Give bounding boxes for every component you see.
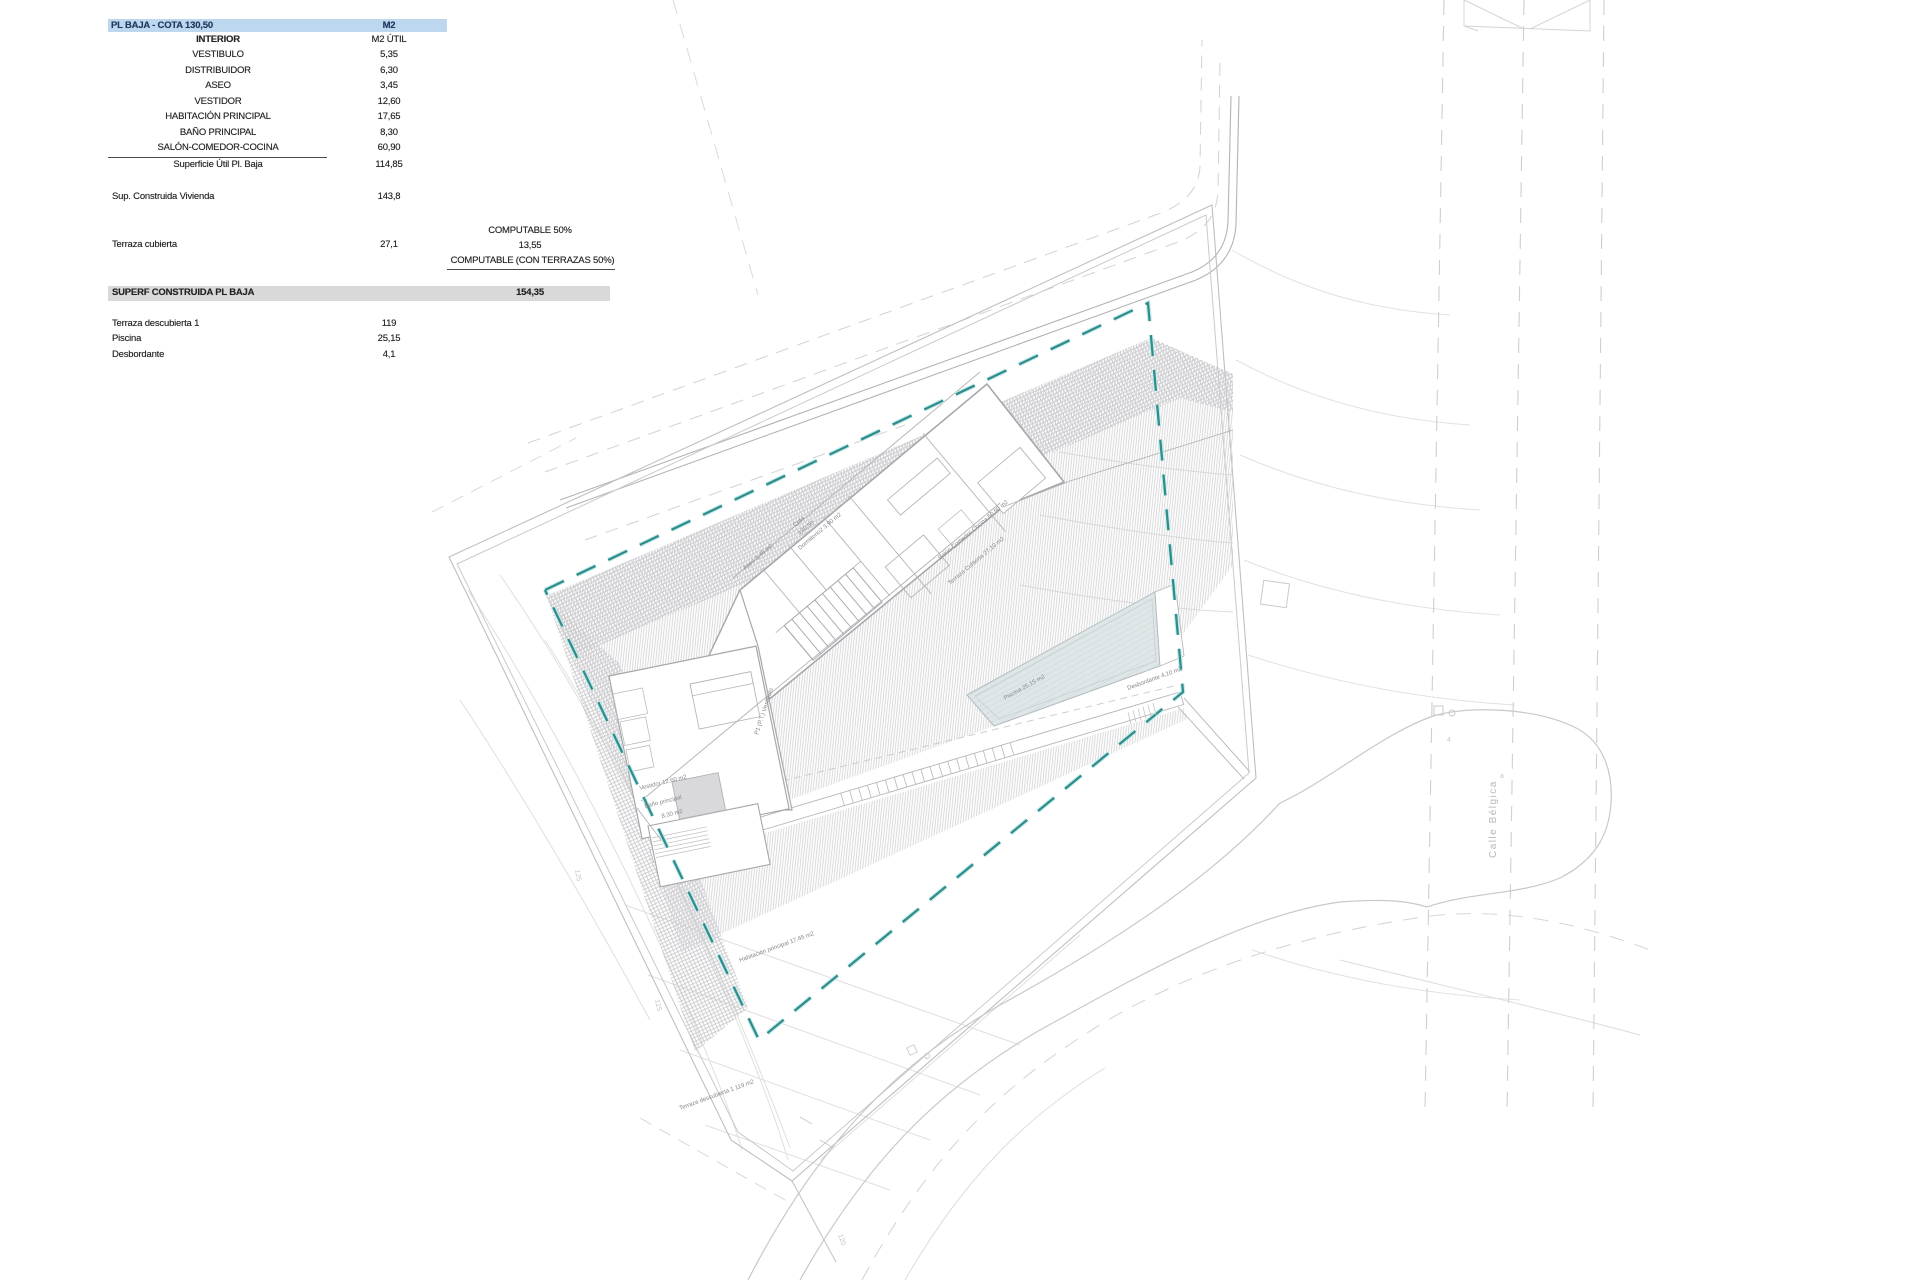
svg-text:Calle Bélgica: Calle Bélgica: [1488, 780, 1499, 858]
svg-text:Terraza descubierta 1 119 m2: Terraza descubierta 1 119 m2: [679, 1079, 756, 1112]
svg-text:125: 125: [653, 999, 662, 1012]
svg-text:120: 120: [836, 1233, 847, 1246]
svg-text:125: 125: [573, 869, 582, 882]
svg-text:a: a: [1500, 773, 1504, 780]
svg-text:4: 4: [1447, 737, 1451, 744]
